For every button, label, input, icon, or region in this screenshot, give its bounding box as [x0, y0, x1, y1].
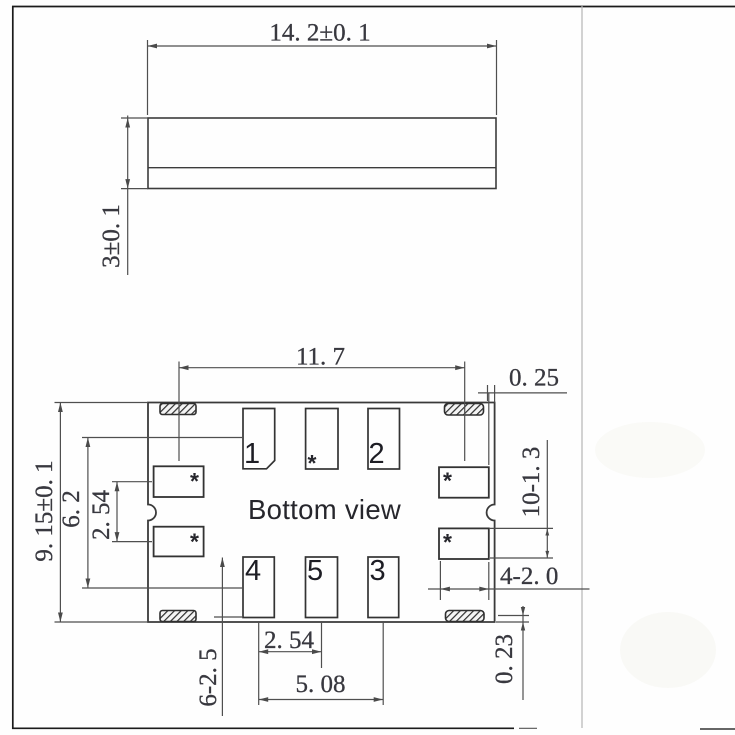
svg-text:2. 54: 2. 54	[264, 627, 315, 654]
svg-text:0. 25: 0. 25	[509, 365, 559, 392]
svg-text:10-1. 3: 10-1. 3	[518, 447, 545, 518]
svg-text:*: *	[443, 529, 452, 555]
svg-text:*: *	[443, 468, 452, 494]
svg-text:9. 15±0. 1: 9. 15±0. 1	[31, 460, 58, 561]
svg-text:*: *	[190, 529, 199, 555]
svg-text:2: 2	[369, 438, 385, 470]
svg-text:Bottom view: Bottom view	[248, 494, 401, 525]
svg-text:5: 5	[307, 555, 323, 587]
svg-text:3±0. 1: 3±0. 1	[98, 204, 125, 268]
svg-text:6-2. 5: 6-2. 5	[195, 648, 222, 706]
svg-text:3: 3	[370, 555, 386, 587]
svg-text:5. 08: 5. 08	[296, 671, 346, 698]
svg-text:1: 1	[244, 438, 260, 470]
svg-text:6. 2: 6. 2	[58, 490, 85, 528]
svg-text:14. 2±0. 1: 14. 2±0. 1	[269, 20, 370, 47]
svg-text:*: *	[308, 450, 317, 476]
svg-text:*: *	[190, 468, 199, 494]
svg-text:4-2. 0: 4-2. 0	[500, 563, 558, 590]
svg-text:0. 23: 0. 23	[491, 634, 518, 684]
svg-text:11. 7: 11. 7	[296, 344, 345, 371]
svg-text:2. 54: 2. 54	[88, 490, 115, 541]
svg-text:4: 4	[245, 555, 261, 587]
